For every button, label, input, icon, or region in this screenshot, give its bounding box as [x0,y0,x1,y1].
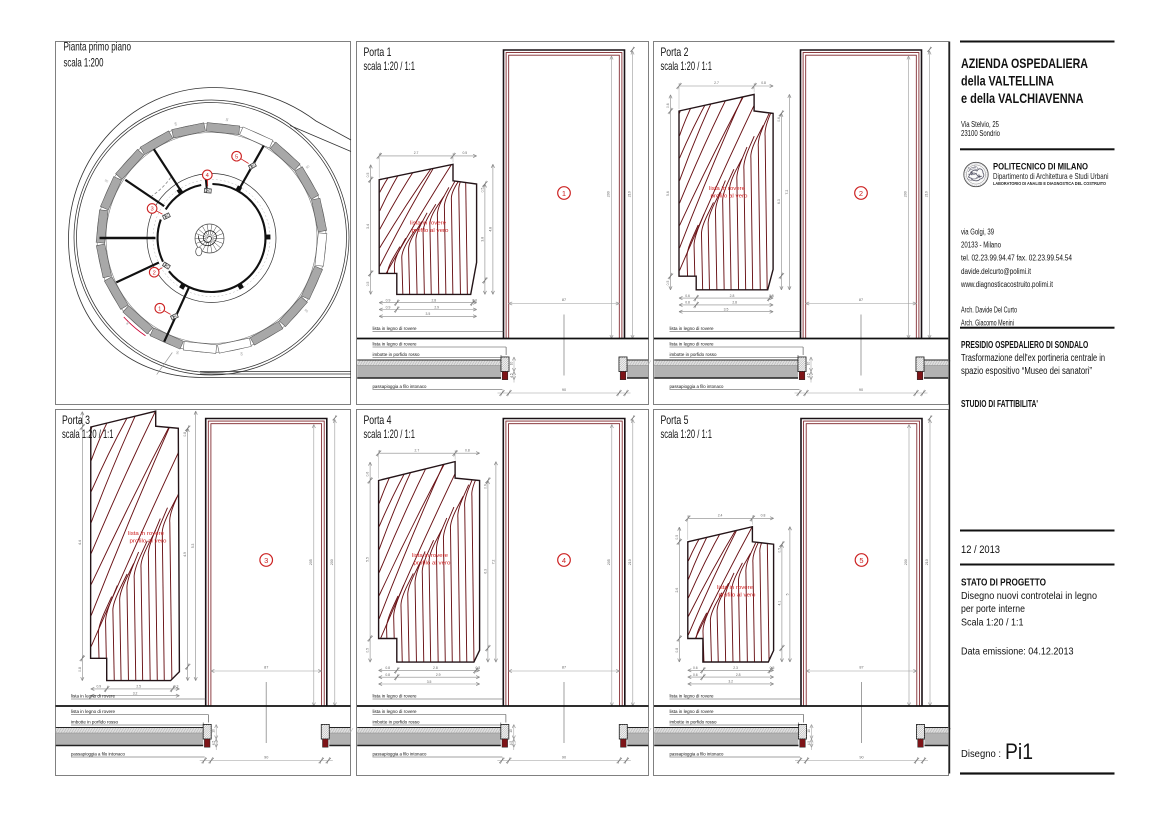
svg-text:Pianta primo piano: Pianta primo piano [64,40,132,54]
svg-text:5.5: 5.5 [366,557,370,562]
svg-text:210: 210 [925,191,929,197]
svg-text:Arch. Davide Del Curto: Arch. Davide Del Curto [961,306,1017,315]
svg-text:200: 200 [904,191,908,197]
svg-text:90: 90 [859,388,863,392]
svg-text:Porta 3: Porta 3 [62,413,90,427]
svg-text:Porta 2: Porta 2 [661,45,689,59]
svg-text:0.9: 0.9 [96,685,101,689]
svg-text:0.8: 0.8 [465,448,470,452]
svg-text:4.5: 4.5 [509,741,513,746]
svg-text:3.5: 3.5 [427,680,432,684]
svg-text:7.2: 7.2 [491,559,495,564]
svg-text:210: 210 [628,559,632,565]
svg-text:Dipartimento di Architettura e: Dipartimento di Architettura e Studi Urb… [993,172,1109,181]
svg-text:0.8: 0.8 [685,301,690,305]
svg-text:5: 5 [235,154,238,160]
svg-text:0.9: 0.9 [386,299,391,303]
svg-text:imbotte in porfido rosso: imbotte in porfido rosso [373,720,420,725]
svg-text:3: 3 [150,207,153,213]
svg-text:0.6: 0.6 [777,117,781,122]
svg-text:per porte interne: per porte interne [961,604,1025,615]
svg-text:AZIENDA OSPEDALIERA: AZIENDA OSPEDALIERA [961,55,1088,71]
svg-text:4.8: 4.8 [488,227,492,232]
svg-text:Trasformazione dell'ex portine: Trasformazione dell'ex portineria centra… [961,353,1105,364]
svg-text:0.5: 0.5 [770,666,775,670]
svg-text:0.3: 0.3 [472,299,477,303]
svg-text:passapioggia a filo intonaco: passapioggia a filo intonaco [373,752,427,757]
svg-text:Arch. Giacomo Menini: Arch. Giacomo Menini [961,319,1014,328]
svg-text:0.5: 0.5 [366,281,370,286]
svg-text:passapioggia a filo intonaco: passapioggia a filo intonaco [373,384,427,389]
svg-text:5: 5 [785,593,789,595]
svg-text:10: 10 [509,362,513,366]
svg-text:200: 200 [904,559,908,565]
svg-text:2.8: 2.8 [730,294,735,298]
svg-text:0.5: 0.5 [480,188,484,193]
svg-text:12 / 2013: 12 / 2013 [961,544,1000,556]
svg-text:spazio espositivo “Museo dei s: spazio espositivo “Museo dei sanatori” [961,366,1092,377]
svg-text:profilo al vero: profilo al vero [414,561,451,567]
svg-text:lista in legno di rovere: lista in legno di rovere [670,342,714,347]
svg-text:2.3: 2.3 [733,666,738,670]
svg-text:0.5: 0.5 [769,294,774,298]
svg-text:2: 2 [859,189,863,198]
svg-text:0.8: 0.8 [675,648,679,653]
svg-text:2.6: 2.6 [675,588,679,593]
svg-text:STUDIO DI FATTIBILITA': STUDIO DI FATTIBILITA' [961,399,1038,410]
svg-text:Via Stelvio, 25: Via Stelvio, 25 [961,120,999,129]
svg-text:scala 1:20 / 1:1: scala 1:20 / 1:1 [661,59,713,73]
svg-text:lista in legno di rovere: lista in legno di rovere [670,326,714,331]
svg-text:87: 87 [859,666,863,670]
svg-text:0.3: 0.3 [475,666,480,670]
svg-text:0.8: 0.8 [761,514,766,518]
svg-text:3.8: 3.8 [480,237,484,242]
svg-text:0.5: 0.5 [366,648,370,653]
svg-text:profilo al vero: profilo al vero [130,539,167,545]
svg-text:2.5: 2.5 [136,685,141,689]
svg-text:210: 210 [925,559,929,565]
svg-text:4: 4 [562,556,566,565]
svg-text:Disegno :: Disegno : [961,749,1001,760]
svg-text:scala 1:20 / 1:1: scala 1:20 / 1:1 [62,427,114,441]
svg-text:2.8: 2.8 [433,666,438,670]
svg-text:2.9: 2.9 [434,305,439,309]
svg-text:87: 87 [859,298,863,302]
svg-text:200: 200 [607,191,611,197]
svg-text:4.5: 4.5 [509,373,513,378]
svg-text:4.1: 4.1 [777,601,781,606]
svg-text:0.6: 0.6 [666,103,670,108]
svg-text:5: 5 [859,556,863,565]
svg-text:profilo al vero: profilo al vero [719,593,756,599]
svg-text:imbotte in porfido rosso: imbotte in porfido rosso [670,352,717,357]
svg-text:87: 87 [264,666,268,670]
svg-text:POLITECNICO DI MILANO: POLITECNICO DI MILANO [993,161,1088,171]
svg-text:5.3: 5.3 [191,543,195,548]
svg-text:10: 10 [806,362,810,366]
svg-text:0.8: 0.8 [385,673,390,677]
svg-text:4.4: 4.4 [78,540,82,545]
svg-text:205: 205 [607,559,611,565]
svg-text:5.6: 5.6 [666,191,670,196]
svg-text:4.9: 4.9 [183,552,187,557]
svg-text:lista in rovere: lista in rovere [410,221,446,227]
svg-text:0.9: 0.9 [386,305,391,309]
svg-text:90: 90 [264,756,268,760]
svg-text:3.2: 3.2 [728,680,733,684]
svg-text:2.4: 2.4 [718,514,723,518]
svg-text:lista in legno di rovere: lista in legno di rovere [71,709,115,714]
svg-text:Scala 1:20 / 1:1: Scala 1:20 / 1:1 [961,617,1024,628]
svg-text:passapioggia a filo intonaco: passapioggia a filo intonaco [670,384,724,389]
svg-text:scala 1:20 / 1:1: scala 1:20 / 1:1 [364,427,416,441]
svg-text:3.5: 3.5 [724,308,729,312]
svg-text:200: 200 [330,559,334,565]
svg-text:imbotte in porfido rosso: imbotte in porfido rosso [670,720,717,725]
svg-text:2.7: 2.7 [414,151,419,155]
svg-text:4.5: 4.5 [807,741,811,746]
svg-text:0.5: 0.5 [462,151,467,155]
svg-text:0.5: 0.5 [777,548,781,553]
svg-text:davide.delcurto@polimi.it: davide.delcurto@polimi.it [961,267,1032,276]
svg-text:0.6: 0.6 [693,666,698,670]
svg-text:tel. 02.23.99.94.47 fax. 02: tel. 02.23.99.94.47 fax. 02.23.99.54.54 [961,254,1072,263]
svg-text:profilo al vero: profilo al vero [711,194,748,200]
svg-text:della VALTELLINA: della VALTELLINA [961,73,1054,89]
svg-text:PRESIDIO OSPEDALIERO DI SONDAL: PRESIDIO OSPEDALIERO DI SONDALO [961,340,1088,351]
svg-text:lista in rovere: lista in rovere [412,553,448,559]
svg-text:90: 90 [859,756,863,760]
svg-text:0.3: 0.3 [174,685,179,689]
svg-text:6.3: 6.3 [777,199,781,204]
svg-text:passapioggia a filo intonaco: passapioggia a filo intonaco [670,752,724,757]
svg-text:2.8: 2.8 [431,299,436,303]
svg-text:lista in rovere: lista in rovere [717,585,753,591]
svg-text:0.8: 0.8 [78,667,82,672]
svg-text:lista in legno di rovere: lista in legno di rovere [373,326,417,331]
svg-text:7.2: 7.2 [785,190,789,195]
svg-text:0.8: 0.8 [761,81,766,85]
svg-text:10: 10 [807,729,811,733]
svg-text:2.7: 2.7 [415,448,420,452]
svg-text:lista in rovere: lista in rovere [128,531,164,537]
svg-text:passapioggia a filo intonaco: passapioggia a filo intonaco [71,752,125,757]
svg-text:20133 - Milano: 20133 - Milano [961,241,1001,250]
svg-text:4.5: 4.5 [806,373,810,378]
svg-text:0.6: 0.6 [366,472,370,477]
svg-text:lista in legno di rovere: lista in legno di rovere [670,709,714,714]
svg-text:4.5: 4.5 [212,741,216,746]
svg-text:3.4: 3.4 [366,224,370,229]
svg-text:lista in legno di rovere: lista in legno di rovere [71,694,115,699]
svg-text:profilo al vero: profilo al vero [412,228,449,234]
svg-text:imbotte in porfido rosso: imbotte in porfido rosso [373,352,420,357]
svg-text:2.8: 2.8 [732,301,737,305]
svg-text:2.8: 2.8 [736,673,741,677]
svg-text:lista in legno di rovere: lista in legno di rovere [373,709,417,714]
svg-text:via Golgi, 39: via Golgi, 39 [961,228,994,237]
svg-text:0.5: 0.5 [666,281,670,286]
svg-text:imbotte in porfido rosso: imbotte in porfido rosso [71,720,118,725]
svg-text:Porta 4: Porta 4 [364,413,392,427]
svg-text:6.3: 6.3 [483,569,487,574]
svg-text:Porta 1: Porta 1 [364,45,392,59]
svg-text:e della VALCHIAVENNA: e della VALCHIAVENNA [961,90,1084,106]
svg-text:Porta 5: Porta 5 [661,413,689,427]
svg-text:210: 210 [628,191,632,197]
svg-text:3: 3 [264,556,268,565]
svg-text:23100 Sondrio: 23100 Sondrio [961,129,1000,138]
svg-text:lista in legno di rovere: lista in legno di rovere [373,342,417,347]
svg-text:3.5: 3.5 [426,312,431,316]
svg-text:2.7: 2.7 [714,81,719,85]
svg-text:lista in legno di rovere: lista in legno di rovere [670,694,714,699]
svg-text:www.diagnosticacostruito.polim: www.diagnosticacostruito.polimi.it [960,280,1053,289]
svg-text:0.6: 0.6 [685,294,690,298]
svg-text:87: 87 [562,666,566,670]
svg-text:0.6: 0.6 [483,484,487,489]
svg-text:0.8: 0.8 [183,432,187,437]
svg-text:87: 87 [562,298,566,302]
svg-text:STATO DI PROGETTO: STATO DI PROGETTO [961,578,1046,589]
svg-text:1: 1 [158,306,161,312]
svg-text:3.2: 3.2 [133,692,138,696]
svg-text:lista in legno di rovere: lista in legno di rovere [373,694,417,699]
svg-text:90: 90 [562,756,566,760]
svg-text:0.5: 0.5 [675,535,679,540]
svg-text:0.5: 0.5 [366,173,370,178]
svg-text:2.9: 2.9 [436,673,441,677]
svg-text:scala 1:20 / 1:1: scala 1:20 / 1:1 [364,59,416,73]
svg-text:0.8: 0.8 [385,666,390,670]
svg-text:205: 205 [309,559,313,565]
svg-text:Pi1: Pi1 [1005,739,1033,764]
svg-text:10: 10 [212,729,216,733]
svg-text:0.6: 0.6 [693,673,698,677]
svg-text:scala 1:20 / 1:1: scala 1:20 / 1:1 [661,427,713,441]
svg-text:1: 1 [562,189,566,198]
svg-text:2: 2 [153,270,156,276]
svg-text:10: 10 [509,729,513,733]
svg-text:Data emissione: 04.12.2013: Data emissione: 04.12.2013 [961,647,1074,658]
svg-text:LABORATORIO DI ANALISI E DIAGN: LABORATORIO DI ANALISI E DIAGNOSTICA DEL… [993,181,1106,186]
svg-text:scala 1:200: scala 1:200 [64,56,104,70]
svg-text:Disegno nuovi controtelai in l: Disegno nuovi controtelai in legno [961,591,1097,602]
svg-text:90: 90 [562,388,566,392]
svg-text:lista in rovere: lista in rovere [709,186,745,192]
